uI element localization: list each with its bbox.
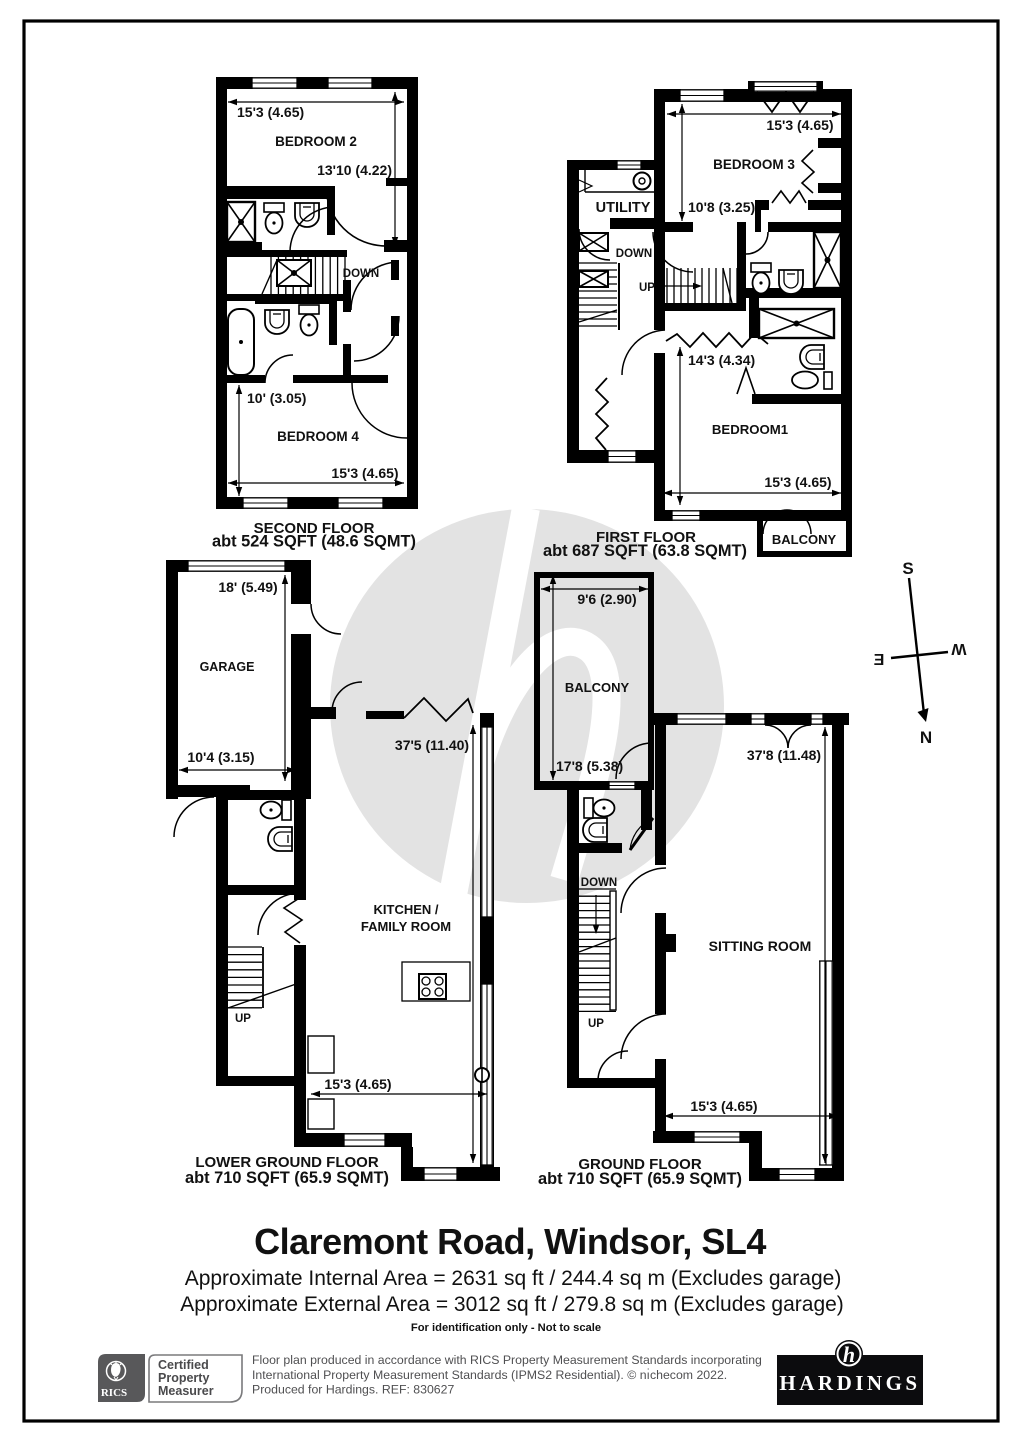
svg-text:15'3 (4.65): 15'3 (4.65) bbox=[331, 465, 398, 481]
svg-text:Approximate Internal Area = 26: Approximate Internal Area = 2631 sq ft /… bbox=[185, 1267, 842, 1290]
svg-text:DOWN: DOWN bbox=[616, 248, 652, 260]
svg-text:9'6 (2.90): 9'6 (2.90) bbox=[577, 591, 636, 607]
svg-text:Produced for Hardings. REF:: Produced for Hardings. REF: 830627 bbox=[252, 1383, 454, 1397]
svg-text:UTILITY: UTILITY bbox=[596, 200, 651, 216]
svg-text:DOWN: DOWN bbox=[581, 877, 617, 889]
svg-text:FAMILY ROOM: FAMILY ROOM bbox=[361, 919, 451, 934]
svg-text:S: S bbox=[902, 559, 913, 578]
svg-text:h: h bbox=[843, 1342, 855, 1367]
svg-text:15'3 (4.65): 15'3 (4.65) bbox=[766, 117, 833, 133]
svg-text:GARAGE: GARAGE bbox=[200, 660, 255, 674]
svg-text:BEDROOM 4: BEDROOM 4 bbox=[277, 429, 359, 444]
svg-text:BEDROOM1: BEDROOM1 bbox=[712, 422, 788, 437]
svg-text:37'5 (11.40): 37'5 (11.40) bbox=[395, 737, 469, 753]
svg-text:DOWN: DOWN bbox=[343, 268, 379, 280]
svg-text:15'3 (4.65): 15'3 (4.65) bbox=[237, 104, 304, 120]
svg-text:Measurer: Measurer bbox=[158, 1384, 214, 1398]
svg-text:UP: UP bbox=[235, 1013, 251, 1025]
svg-text:BEDROOM 2: BEDROOM 2 bbox=[275, 134, 357, 149]
svg-text:For identification only - Not: For identification only - Not to scale bbox=[411, 1322, 601, 1334]
svg-text:10'8 (3.25): 10'8 (3.25) bbox=[688, 199, 755, 215]
svg-text:E: E bbox=[873, 652, 884, 669]
svg-text:15'3 (4.65): 15'3 (4.65) bbox=[324, 1076, 391, 1092]
svg-text:15'3 (4.65): 15'3 (4.65) bbox=[690, 1098, 757, 1114]
svg-text:HARDINGS: HARDINGS bbox=[779, 1371, 920, 1395]
svg-text:37'8 (11.48): 37'8 (11.48) bbox=[747, 747, 821, 763]
svg-text:UP: UP bbox=[588, 1018, 604, 1030]
svg-text:BALCONY: BALCONY bbox=[565, 680, 630, 695]
svg-text:abt 687 SQFT (63.8 SQMT): abt 687 SQFT (63.8 SQMT) bbox=[543, 542, 747, 560]
svg-text:KITCHEN /: KITCHEN / bbox=[374, 902, 439, 917]
svg-text:BALCONY: BALCONY bbox=[772, 532, 837, 547]
svg-text:RICS: RICS bbox=[101, 1387, 127, 1399]
svg-text:abt 710 SQFT (65.9 SQMT): abt 710 SQFT (65.9 SQMT) bbox=[538, 1170, 742, 1188]
svg-text:N: N bbox=[920, 728, 932, 747]
svg-text:13'10 (4.22): 13'10 (4.22) bbox=[317, 162, 392, 178]
svg-text:abt 710 SQFT (65.9 SQMT): abt 710 SQFT (65.9 SQMT) bbox=[185, 1169, 389, 1187]
svg-text:18' (5.49): 18' (5.49) bbox=[218, 579, 277, 595]
svg-text:17'8 (5.38): 17'8 (5.38) bbox=[556, 758, 623, 774]
svg-text:15'3 (4.65): 15'3 (4.65) bbox=[764, 474, 831, 490]
svg-text:International Property Measure: International Property Measurement Stand… bbox=[252, 1368, 727, 1382]
svg-text:abt 524 SQFT (48.6 SQMT): abt 524 SQFT (48.6 SQMT) bbox=[212, 533, 416, 551]
svg-text:W: W bbox=[951, 640, 967, 657]
svg-text:Certified: Certified bbox=[158, 1358, 209, 1372]
svg-text:10'4 (3.15): 10'4 (3.15) bbox=[187, 749, 254, 765]
svg-text:SITTING ROOM: SITTING ROOM bbox=[709, 938, 812, 954]
svg-text:Property: Property bbox=[158, 1371, 209, 1385]
svg-text:Claremont Road, Windsor, SL4: Claremont Road, Windsor, SL4 bbox=[254, 1221, 766, 1262]
svg-text:Approximate External Area = 30: Approximate External Area = 3012 sq ft /… bbox=[180, 1293, 844, 1316]
svg-text:14'3 (4.34): 14'3 (4.34) bbox=[688, 352, 755, 368]
svg-text:10' (3.05): 10' (3.05) bbox=[247, 390, 306, 406]
svg-text:BEDROOM 3: BEDROOM 3 bbox=[713, 157, 795, 172]
svg-text:Floor plan produced in accorda: Floor plan produced in accordance with R… bbox=[252, 1353, 762, 1367]
svg-text:UP: UP bbox=[639, 282, 655, 294]
